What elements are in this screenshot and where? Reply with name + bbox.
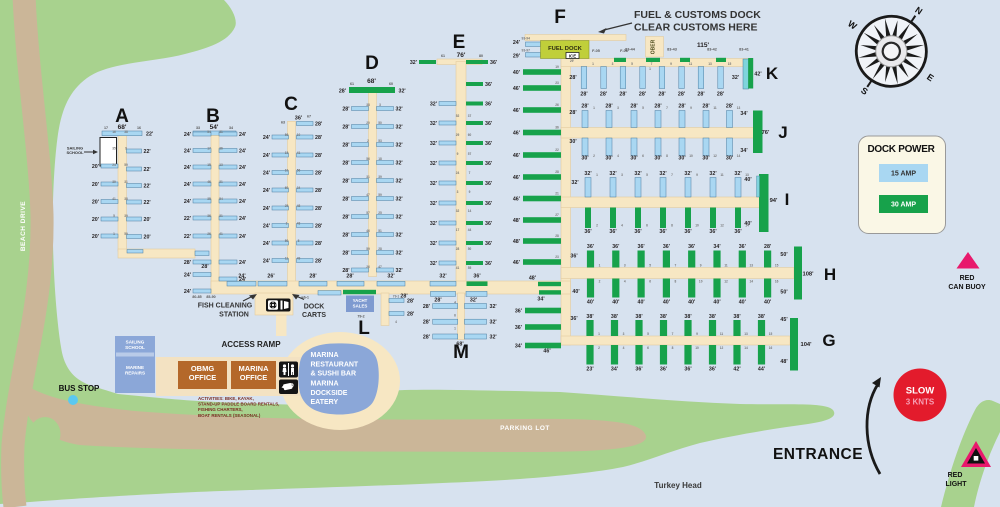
svg-text:93-97: 93-97 (522, 49, 531, 53)
svg-text:28': 28' (678, 92, 685, 98)
svg-text:26: 26 (555, 103, 559, 107)
svg-text:28': 28' (342, 143, 349, 149)
svg-text:7: 7 (671, 173, 673, 177)
svg-text:32': 32' (430, 181, 437, 187)
svg-text:47: 47 (366, 193, 370, 197)
svg-text:FUEL & CUSTOMS DOCK: FUEL & CUSTOMS DOCK (634, 9, 761, 21)
svg-text:30': 30' (654, 156, 661, 162)
svg-text:46: 46 (366, 229, 370, 233)
svg-text:CARTS: CARTS (302, 312, 326, 319)
svg-text:7: 7 (672, 332, 674, 336)
svg-text:32': 32' (399, 89, 406, 95)
svg-text:32': 32' (430, 221, 437, 227)
svg-text:32': 32' (430, 102, 437, 108)
svg-text:24': 24' (263, 259, 270, 265)
svg-text:14: 14 (750, 280, 754, 284)
svg-text:13: 13 (219, 163, 223, 167)
svg-text:36': 36' (584, 229, 591, 235)
svg-text:24': 24' (513, 40, 520, 46)
svg-text:36': 36' (609, 229, 616, 235)
svg-text:32': 32' (396, 179, 403, 185)
svg-text:40': 40' (713, 300, 720, 306)
svg-text:SCHOOL: SCHOOL (66, 150, 84, 155)
svg-text:2: 2 (598, 346, 600, 350)
svg-text:RED: RED (948, 472, 963, 479)
svg-text:28': 28' (581, 104, 588, 110)
svg-text:32: 32 (456, 209, 460, 213)
svg-text:46': 46' (513, 197, 520, 203)
svg-text:24': 24' (184, 165, 191, 171)
svg-text:38': 38' (586, 314, 593, 320)
svg-text:36': 36' (485, 241, 492, 247)
svg-text:24': 24' (263, 153, 270, 159)
svg-text:42': 42' (754, 72, 761, 78)
svg-text:STATION: STATION (219, 312, 249, 319)
svg-text:20': 20' (144, 235, 151, 241)
svg-text:59: 59 (124, 232, 128, 236)
svg-text:11: 11 (713, 106, 717, 110)
svg-text:41: 41 (219, 232, 223, 236)
svg-text:5: 5 (631, 62, 633, 66)
svg-text:34': 34' (537, 297, 544, 303)
svg-text:4: 4 (624, 280, 626, 284)
svg-text:14: 14 (468, 209, 472, 213)
svg-text:36': 36' (485, 201, 492, 207)
svg-text:22': 22' (144, 167, 151, 173)
svg-text:16: 16 (769, 346, 773, 350)
svg-text:3: 3 (612, 62, 614, 66)
svg-text:30': 30' (726, 156, 733, 162)
svg-text:22': 22' (144, 200, 151, 206)
svg-text:18: 18 (378, 157, 382, 161)
svg-text:OFFICE: OFFICE (240, 373, 268, 382)
svg-text:DOCKSIDE: DOCKSIDE (311, 390, 348, 397)
svg-text:36': 36' (515, 325, 522, 331)
svg-text:MARINA: MARINA (311, 352, 339, 359)
svg-text:RESTAURANT: RESTAURANT (311, 361, 359, 368)
svg-text:32': 32' (732, 75, 739, 81)
svg-text:24': 24' (263, 241, 270, 247)
svg-text:28': 28' (407, 299, 414, 305)
svg-text:36': 36' (295, 116, 303, 122)
svg-text:6: 6 (647, 346, 649, 350)
svg-text:38: 38 (366, 103, 370, 107)
svg-text:59: 59 (366, 247, 370, 251)
svg-text:5: 5 (647, 332, 649, 336)
svg-text:36': 36' (739, 244, 746, 250)
svg-text:14: 14 (745, 224, 749, 228)
svg-text:28': 28' (342, 161, 349, 167)
svg-text:20': 20' (92, 182, 99, 188)
svg-text:7: 7 (651, 62, 653, 66)
svg-text:46': 46' (543, 349, 550, 355)
svg-text:24': 24' (239, 260, 246, 266)
svg-text:15: 15 (769, 332, 773, 336)
svg-text:36': 36' (473, 274, 480, 280)
svg-text:36': 36' (659, 229, 666, 235)
svg-text:5: 5 (646, 173, 648, 177)
svg-text:36': 36' (515, 309, 522, 315)
svg-text:46': 46' (513, 153, 520, 159)
svg-text:24': 24' (184, 132, 191, 138)
svg-text:46': 46' (513, 86, 520, 92)
svg-text:46: 46 (207, 180, 211, 184)
svg-text:32': 32' (571, 180, 578, 186)
svg-text:24: 24 (456, 171, 460, 175)
svg-text:54': 54' (210, 124, 219, 131)
svg-text:11: 11 (285, 257, 289, 261)
svg-text:20: 20 (366, 121, 370, 125)
svg-text:36': 36' (485, 181, 492, 187)
svg-text:32': 32' (396, 268, 403, 274)
svg-text:28': 28' (580, 92, 587, 98)
svg-text:PARKING LOT: PARKING LOT (500, 425, 550, 432)
svg-text:36': 36' (570, 316, 577, 322)
svg-text:13: 13 (745, 173, 749, 177)
svg-text:32': 32' (430, 241, 437, 247)
svg-text:wb-1: wb-1 (300, 296, 309, 300)
svg-text:13: 13 (737, 106, 741, 110)
svg-text:ACTIVITIES: BIKE, KAYAK,: ACTIVITIES: BIKE, KAYAK, (198, 396, 254, 401)
svg-text:5: 5 (649, 264, 651, 268)
svg-text:26': 26' (267, 274, 274, 280)
svg-text:32': 32' (490, 320, 497, 326)
svg-text:34': 34' (611, 367, 618, 373)
svg-text:1: 1 (113, 232, 115, 236)
svg-text:28': 28' (346, 274, 353, 280)
svg-text:9: 9 (670, 62, 672, 66)
svg-text:38': 38' (758, 314, 765, 320)
svg-text:44': 44' (758, 367, 765, 373)
svg-text:32': 32' (490, 304, 497, 310)
svg-text:22: 22 (555, 148, 559, 152)
svg-text:59: 59 (378, 193, 382, 197)
svg-text:32': 32' (430, 141, 437, 147)
svg-text:20': 20' (92, 234, 99, 240)
svg-text:60: 60 (468, 133, 472, 137)
svg-text:1: 1 (286, 222, 288, 226)
svg-text:32': 32' (430, 121, 437, 127)
svg-text:30': 30' (581, 156, 588, 162)
svg-text:61: 61 (441, 54, 445, 58)
svg-text:10: 10 (699, 280, 703, 284)
svg-text:28': 28' (315, 259, 322, 265)
svg-text:28': 28' (342, 125, 349, 131)
svg-text:24': 24' (184, 289, 191, 295)
svg-text:28': 28' (569, 75, 576, 81)
svg-text:3 KNTS: 3 KNTS (906, 398, 935, 407)
svg-text:17: 17 (104, 126, 108, 130)
svg-text:40': 40' (688, 300, 695, 306)
svg-text:28': 28' (315, 188, 322, 194)
svg-text:28': 28' (605, 104, 612, 110)
svg-text:DOCK: DOCK (304, 304, 325, 311)
svg-text:22': 22' (144, 184, 151, 190)
svg-text:11: 11 (720, 332, 724, 336)
svg-text:48': 48' (513, 239, 520, 245)
svg-text:28': 28' (315, 206, 322, 212)
svg-text:SALES: SALES (353, 304, 368, 309)
svg-text:56: 56 (285, 133, 289, 137)
svg-text:35: 35 (207, 197, 211, 201)
svg-text:36': 36' (485, 161, 492, 167)
svg-text:22': 22' (144, 149, 151, 155)
svg-text:28': 28' (764, 244, 771, 250)
svg-text:10: 10 (285, 169, 289, 173)
svg-text:80-85: 80-85 (192, 295, 201, 299)
svg-text:36: 36 (555, 126, 559, 130)
svg-text:31: 31 (124, 180, 128, 184)
svg-text:36': 36' (485, 82, 492, 88)
svg-text:41: 41 (112, 197, 116, 201)
svg-text:40': 40' (764, 300, 771, 306)
svg-text:36': 36' (684, 367, 691, 373)
svg-text:3: 3 (621, 173, 623, 177)
svg-text:36': 36' (709, 367, 716, 373)
svg-text:28': 28' (639, 92, 646, 98)
svg-text:CLEAR CUSTOMS HERE: CLEAR CUSTOMS HERE (634, 22, 757, 34)
svg-text:15: 15 (728, 62, 732, 66)
svg-text:104': 104' (800, 342, 812, 348)
svg-text:1: 1 (596, 173, 598, 177)
svg-text:28': 28' (315, 171, 322, 177)
svg-text:26: 26 (207, 232, 211, 236)
svg-text:BOAT RENTALS (SEASONAL): BOAT RENTALS (SEASONAL) (198, 413, 261, 418)
svg-text:24': 24' (184, 182, 191, 188)
svg-text:I: I (785, 190, 790, 209)
svg-text:23: 23 (555, 255, 559, 259)
svg-text:59: 59 (124, 163, 128, 167)
svg-text:OBER: OBER (651, 39, 657, 54)
svg-text:40': 40' (638, 300, 645, 306)
svg-text:3: 3 (623, 332, 625, 336)
svg-text:36': 36' (635, 367, 642, 373)
svg-text:32': 32' (387, 274, 394, 280)
svg-text:76': 76' (457, 52, 466, 59)
svg-text:3: 3 (379, 103, 381, 107)
svg-text:24': 24' (239, 149, 246, 155)
svg-text:9: 9 (696, 173, 698, 177)
svg-text:68': 68' (367, 78, 376, 85)
svg-text:24': 24' (184, 149, 191, 155)
svg-text:36': 36' (660, 367, 667, 373)
svg-text:34': 34' (740, 111, 747, 117)
svg-text:6: 6 (646, 224, 648, 228)
svg-text:17: 17 (456, 228, 460, 232)
svg-text:32': 32' (490, 335, 497, 341)
svg-text:36': 36' (734, 229, 741, 235)
svg-text:28': 28' (702, 104, 709, 110)
svg-text:MARINA: MARINA (239, 364, 270, 373)
svg-text:24': 24' (263, 188, 270, 194)
svg-text:48': 48' (513, 218, 520, 224)
svg-text:28': 28' (315, 122, 322, 128)
svg-text:22': 22' (146, 132, 153, 138)
svg-text:32': 32' (396, 197, 403, 203)
svg-text:36': 36' (612, 244, 619, 250)
svg-text:EATERY: EATERY (311, 399, 339, 406)
svg-text:25: 25 (378, 211, 382, 215)
svg-text:50': 50' (780, 252, 787, 258)
svg-text:24': 24' (238, 274, 245, 280)
svg-text:13: 13 (744, 332, 748, 336)
svg-text:31: 31 (219, 180, 223, 184)
svg-text:36: 36 (207, 214, 211, 218)
svg-text:28': 28' (309, 274, 316, 280)
svg-text:20': 20' (92, 164, 99, 170)
svg-text:57: 57 (366, 211, 370, 215)
svg-text:L: L (358, 318, 370, 339)
svg-text:39: 39 (112, 180, 116, 184)
svg-text:32': 32' (396, 107, 403, 113)
svg-text:BUS STOP: BUS STOP (59, 384, 100, 393)
svg-text:6: 6 (649, 280, 651, 284)
svg-text:60: 60 (285, 186, 289, 190)
svg-text:36': 36' (485, 121, 492, 127)
svg-text:11: 11 (689, 62, 693, 66)
svg-text:8: 8 (675, 280, 677, 284)
svg-text:53: 53 (378, 139, 382, 143)
svg-text:24': 24' (184, 199, 191, 205)
svg-text:16: 16 (112, 130, 116, 134)
svg-text:24: 24 (112, 163, 116, 167)
svg-text:46': 46' (513, 260, 520, 266)
svg-text:OFFICE: OFFICE (189, 373, 217, 382)
svg-text:34: 34 (229, 126, 233, 130)
svg-text:12: 12 (720, 346, 724, 350)
svg-text:30': 30' (630, 156, 637, 162)
svg-text:38': 38' (635, 314, 642, 320)
svg-text:7: 7 (469, 171, 471, 175)
svg-text:7: 7 (666, 106, 668, 110)
svg-text:14: 14 (744, 346, 748, 350)
svg-text:5: 5 (113, 214, 115, 218)
svg-text:28': 28' (315, 135, 322, 141)
svg-text:F-05: F-05 (592, 49, 600, 53)
svg-text:5: 5 (298, 239, 300, 243)
svg-text:30': 30' (569, 139, 576, 145)
svg-text:15: 15 (775, 264, 779, 268)
svg-text:21: 21 (555, 192, 559, 196)
svg-text:32': 32' (396, 251, 403, 257)
svg-text:6: 6 (454, 314, 456, 318)
svg-text:28': 28' (726, 104, 733, 110)
svg-text:25: 25 (285, 204, 289, 208)
svg-text:30': 30' (678, 156, 685, 162)
svg-text:7: 7 (675, 264, 677, 268)
svg-text:36': 36' (663, 244, 670, 250)
svg-text:34': 34' (515, 344, 522, 350)
svg-text:13: 13 (708, 62, 712, 66)
svg-text:4: 4 (621, 224, 623, 228)
svg-text:2: 2 (599, 280, 601, 284)
svg-text:28': 28' (569, 110, 576, 116)
svg-text:3: 3 (457, 190, 459, 194)
svg-text:10: 10 (297, 133, 301, 137)
svg-text:11: 11 (720, 173, 724, 177)
svg-text:8: 8 (671, 224, 673, 228)
svg-text:4: 4 (617, 154, 619, 158)
svg-text:32': 32' (709, 171, 716, 177)
svg-text:MARINE: MARINE (126, 365, 144, 370)
svg-text:28': 28' (658, 92, 665, 98)
svg-text:MARINA: MARINA (311, 381, 339, 388)
svg-text:32': 32' (470, 298, 477, 304)
svg-text:28: 28 (378, 247, 382, 251)
svg-text:23': 23' (586, 367, 593, 373)
svg-text:60: 60 (389, 82, 393, 86)
svg-text:33: 33 (196, 126, 200, 130)
svg-text:1: 1 (598, 332, 600, 336)
svg-text:1: 1 (649, 67, 651, 71)
svg-text:ENTRANCE: ENTRANCE (773, 446, 863, 463)
svg-text:12: 12 (713, 154, 717, 158)
svg-text:83-43: 83-43 (667, 48, 677, 52)
svg-text:DOCK POWER: DOCK POWER (867, 144, 935, 155)
svg-text:32': 32' (659, 171, 666, 177)
svg-text:36': 36' (688, 244, 695, 250)
svg-text:24': 24' (239, 216, 246, 222)
svg-text:20': 20' (92, 200, 99, 206)
svg-text:51: 51 (378, 229, 382, 233)
svg-text:32': 32' (430, 161, 437, 167)
svg-text:2: 2 (593, 154, 595, 158)
svg-text:2: 2 (596, 224, 598, 228)
svg-text:16: 16 (137, 126, 141, 130)
svg-text:ACCESS RAMP: ACCESS RAMP (221, 340, 281, 349)
svg-text:10: 10 (689, 154, 693, 158)
svg-text:38': 38' (684, 314, 691, 320)
svg-text:37: 37 (468, 114, 472, 118)
svg-text:36': 36' (684, 229, 691, 235)
svg-text:28': 28' (201, 264, 208, 270)
svg-text:30': 30' (702, 156, 709, 162)
svg-text:3: 3 (617, 106, 619, 110)
svg-text:41: 41 (297, 151, 301, 155)
svg-text:39: 39 (124, 214, 128, 218)
svg-text:31: 31 (366, 175, 370, 179)
svg-text:REPAIRS: REPAIRS (125, 370, 145, 375)
svg-text:43: 43 (297, 222, 301, 226)
svg-text:32': 32' (439, 274, 446, 280)
svg-text:32': 32' (609, 171, 616, 177)
svg-text:31: 31 (219, 130, 223, 134)
svg-text:36': 36' (638, 244, 645, 250)
svg-text:LIGHT: LIGHT (946, 481, 968, 488)
svg-text:9: 9 (696, 332, 698, 336)
svg-text:16: 16 (775, 280, 779, 284)
svg-text:48: 48 (297, 204, 301, 208)
svg-text:93-94: 93-94 (522, 37, 531, 41)
svg-text:32': 32' (430, 201, 437, 207)
svg-text:76': 76' (762, 130, 770, 136)
svg-text:28: 28 (555, 234, 559, 238)
svg-text:28': 28' (400, 294, 407, 300)
svg-text:24': 24' (263, 224, 270, 230)
svg-text:24': 24' (263, 135, 270, 141)
svg-text:28': 28' (619, 92, 626, 98)
svg-text:32': 32' (584, 171, 591, 177)
svg-text:48': 48' (780, 359, 787, 365)
svg-text:57: 57 (468, 152, 472, 156)
svg-text:28': 28' (407, 312, 414, 318)
svg-text:K: K (766, 64, 779, 83)
svg-text:3: 3 (624, 264, 626, 268)
svg-text:79-1: 79-1 (393, 295, 400, 299)
svg-text:19: 19 (555, 65, 559, 69)
svg-text:24': 24' (239, 182, 246, 188)
svg-text:32': 32' (396, 161, 403, 167)
